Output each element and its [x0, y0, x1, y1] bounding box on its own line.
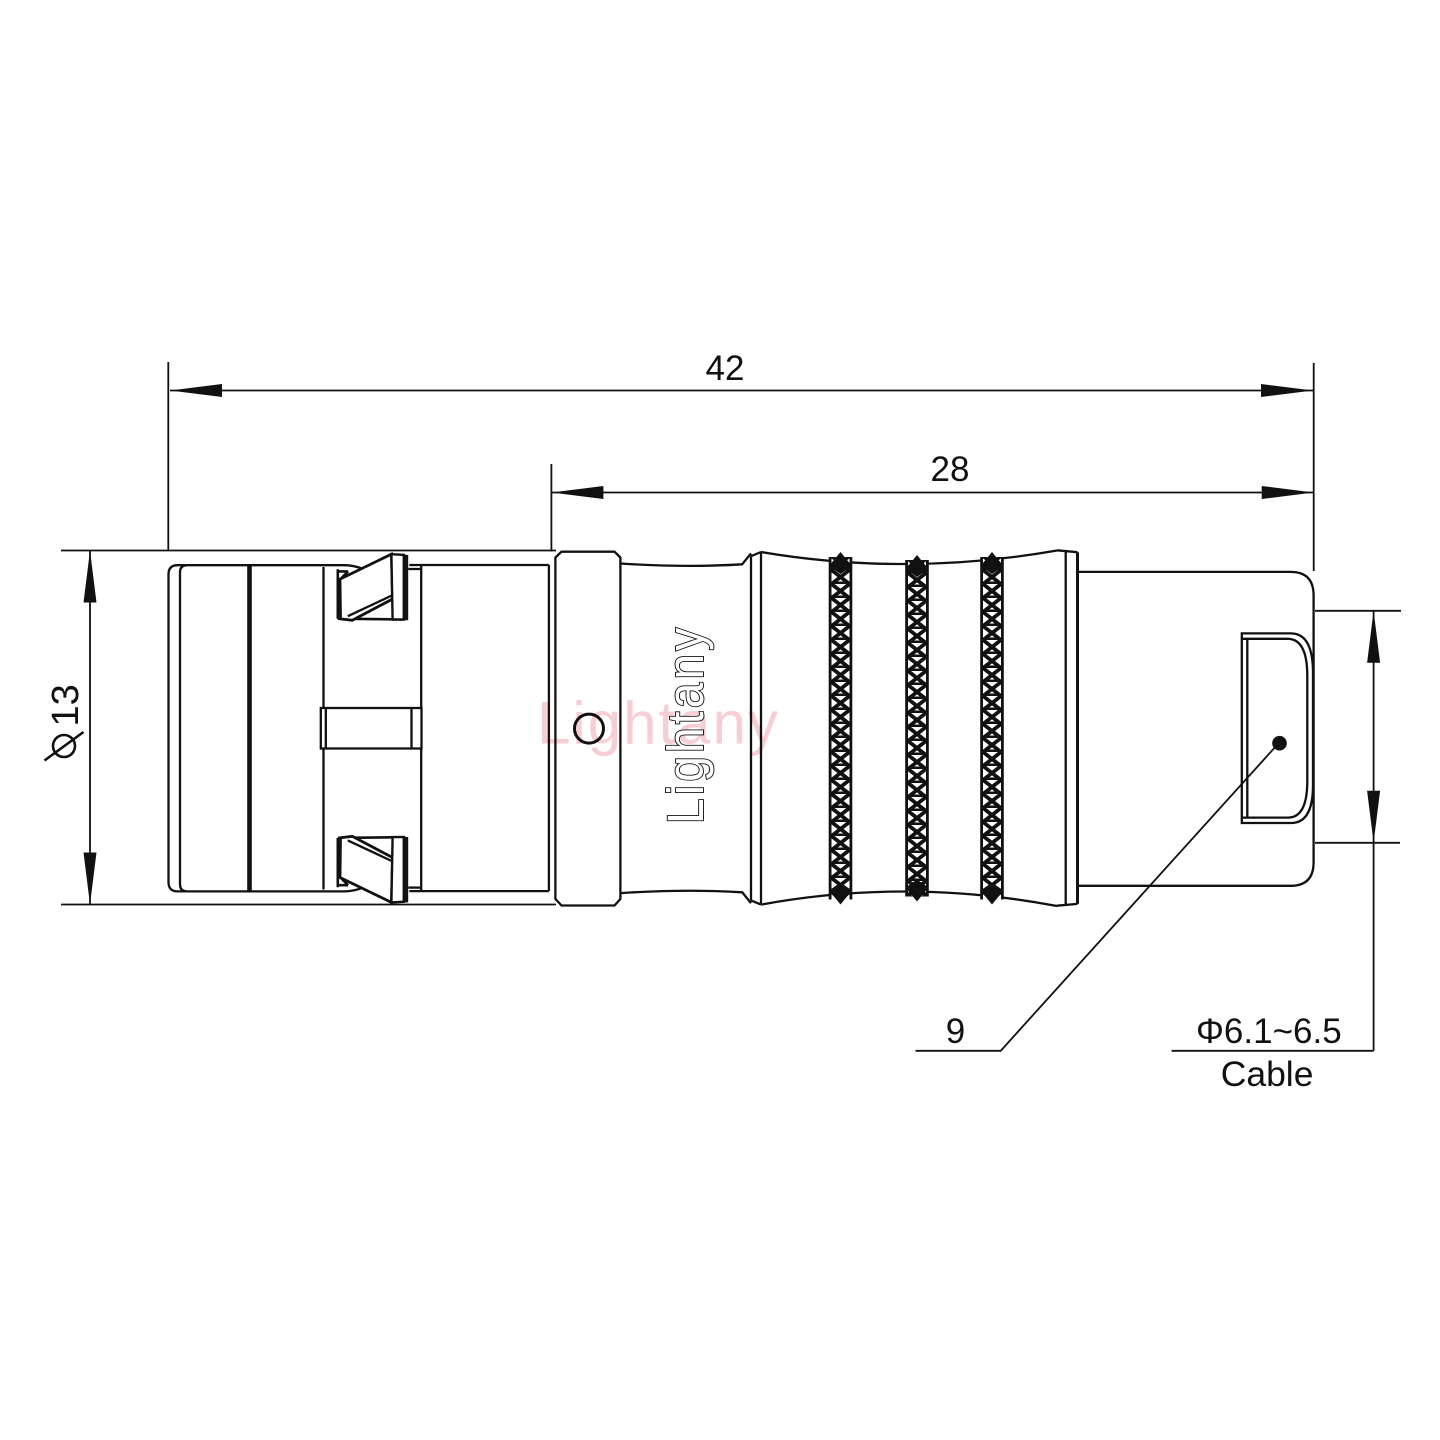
svg-text:Lightany: Lightany	[658, 625, 715, 824]
svg-text:Φ6.1~6.5: Φ6.1~6.5	[1196, 1012, 1342, 1051]
svg-text:42: 42	[706, 349, 745, 388]
svg-text:28: 28	[931, 450, 970, 489]
svg-text:Cable: Cable	[1221, 1054, 1314, 1094]
svg-text:13: 13	[45, 684, 87, 726]
svg-text:9: 9	[946, 1012, 965, 1051]
